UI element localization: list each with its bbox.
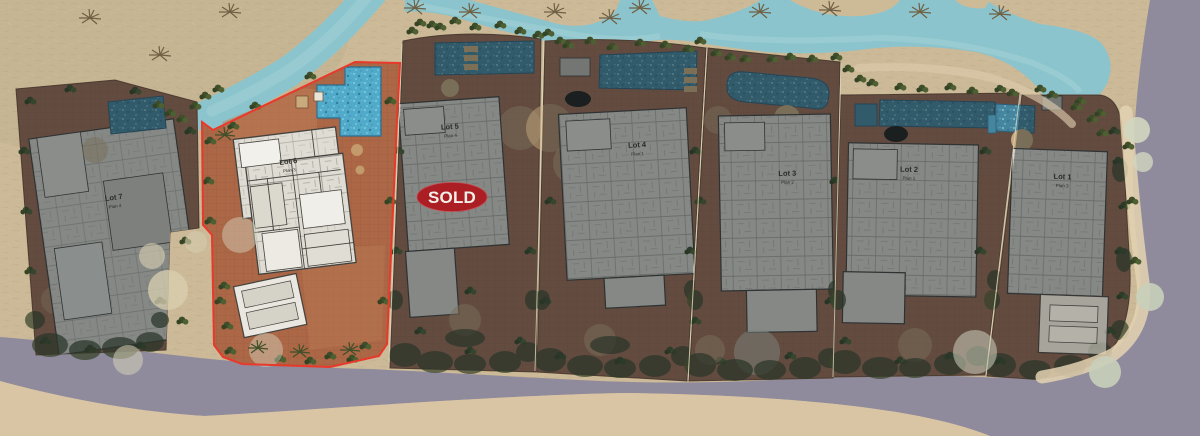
svg-text:SOLD: SOLD: [428, 188, 476, 207]
